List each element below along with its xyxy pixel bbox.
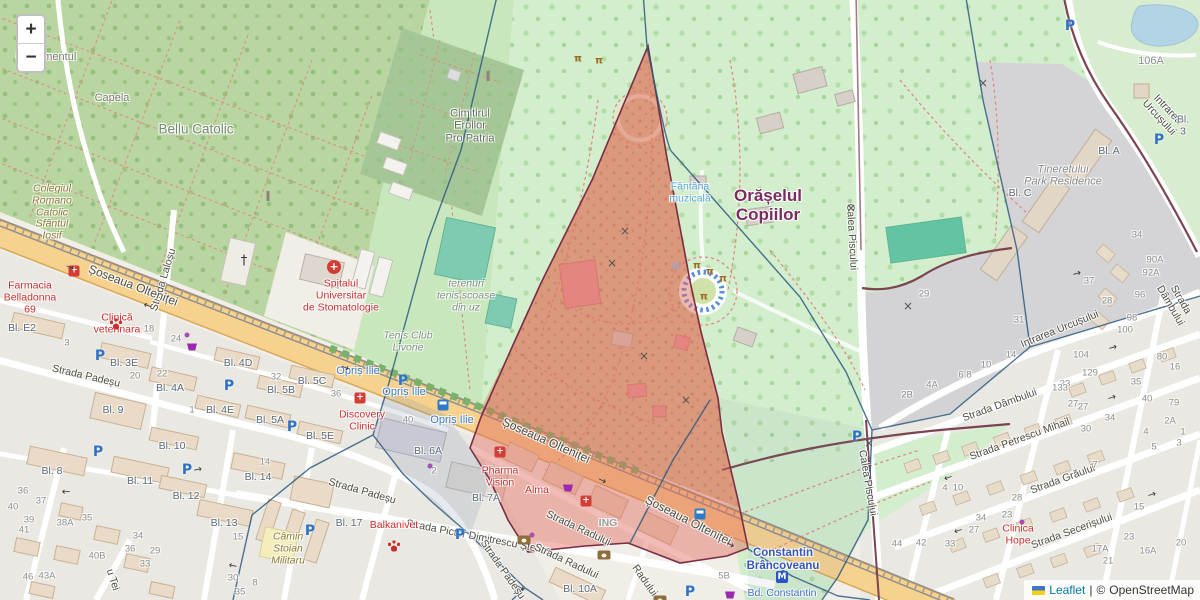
map-tiles [0, 0, 1200, 600]
leaflet-link[interactable]: Leaflet [1049, 583, 1085, 597]
zoom-control: + − [16, 14, 46, 73]
zoom-in-button[interactable]: + [18, 16, 44, 44]
attribution-separator: | [1089, 583, 1092, 597]
attribution-bar: Leaflet | © OpenStreetMap [1024, 580, 1200, 600]
osm-link[interactable]: OpenStreetMap [1109, 583, 1194, 597]
map-canvas[interactable]: CapelaBellu CatolicMonumentulorColegiul … [0, 0, 1200, 600]
ukraine-flag-icon [1032, 586, 1045, 595]
copyright-symbol: © [1096, 583, 1105, 597]
zoom-out-button[interactable]: − [18, 44, 44, 71]
